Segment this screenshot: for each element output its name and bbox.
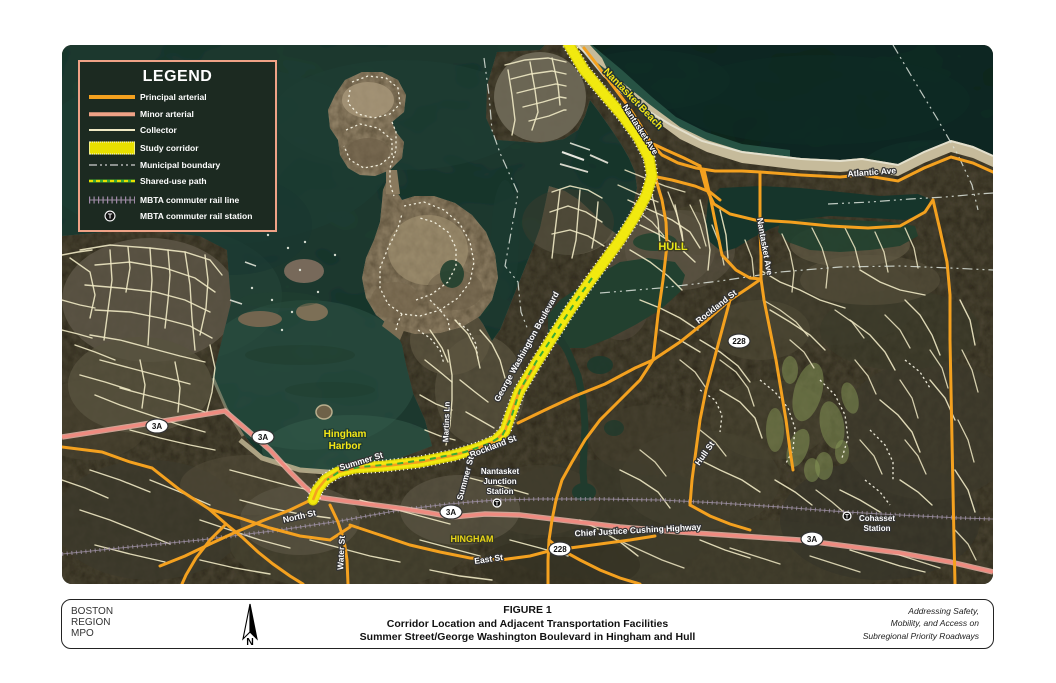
svg-text:Station: Station (863, 524, 890, 533)
svg-text:3A: 3A (807, 535, 817, 544)
svg-text:3A: 3A (446, 508, 456, 517)
svg-text:HINGHAM: HINGHAM (451, 534, 494, 544)
svg-text:Station: Station (486, 487, 513, 496)
svg-text:Junction: Junction (483, 477, 516, 486)
svg-text:Water St: Water St (335, 535, 347, 570)
svg-text:3A: 3A (258, 433, 268, 442)
svg-text:228: 228 (732, 337, 746, 346)
svg-text:Cohasset: Cohasset (859, 514, 895, 523)
svg-text:3A: 3A (152, 422, 162, 431)
svg-text:Hingham: Hingham (324, 429, 367, 440)
svg-text:T: T (845, 514, 849, 520)
svg-text:HULL: HULL (658, 241, 688, 253)
svg-text:Nantasket: Nantasket (481, 467, 520, 476)
svg-text:T: T (108, 214, 113, 221)
svg-text:Martins Ln: Martins Ln (441, 401, 451, 442)
svg-text:Harbor: Harbor (329, 441, 362, 452)
svg-text:228: 228 (553, 545, 567, 554)
svg-text:T: T (495, 501, 499, 507)
